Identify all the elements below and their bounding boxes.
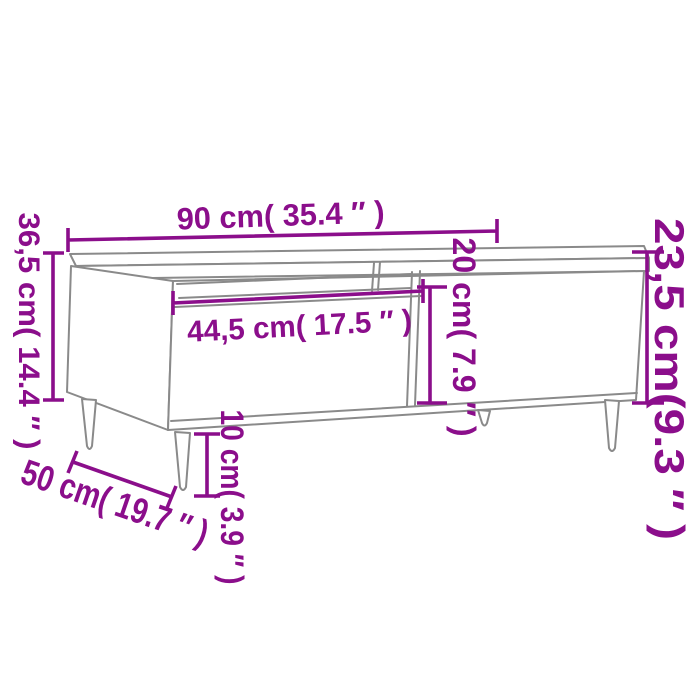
leg-front-right: [605, 400, 619, 451]
coffee-table-drawing: [67, 246, 649, 490]
dim-width: 90 cm( 35.4 ″ ): [68, 194, 497, 252]
dimension-diagram: 90 cm( 35.4 ″ ) 36,5 cm( 14.4 ″ ) 44,5 c…: [0, 0, 700, 700]
dim-width-label: 90 cm( 35.4 ″ ): [176, 194, 385, 236]
dim-total-height-line: [43, 253, 64, 400]
leg-front-left: [175, 432, 190, 490]
dim-leg-height: 10 cm( 3.9 ″ ): [194, 410, 250, 585]
dim-front-panel-height-label: 20 cm( 7.9 ″ ): [446, 238, 482, 437]
leg-left: [82, 399, 96, 449]
dim-total-height: 36,5 cm( 14.4 ″ ): [12, 213, 64, 450]
dim-total-height-label: 36,5 cm( 14.4 ″ ): [12, 213, 45, 450]
dim-leg-height-label: 10 cm( 3.9 ″ ): [214, 410, 250, 585]
dim-body-height-label: 23,5 cm(9.3 ″ ): [646, 218, 693, 540]
